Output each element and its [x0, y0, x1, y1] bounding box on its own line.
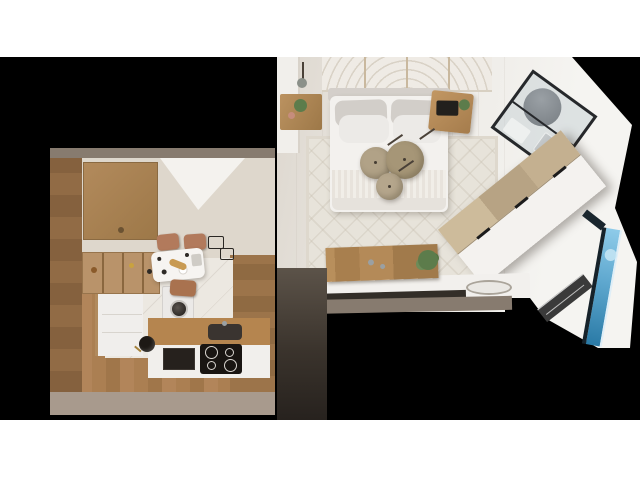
shelf-item — [147, 269, 152, 274]
dining-chair — [156, 233, 180, 251]
kitchen-sink — [208, 324, 242, 340]
chair-metal-frame — [220, 248, 234, 260]
green-plant — [418, 250, 438, 270]
bottom-white-band — [0, 420, 640, 480]
floorplan-render — [0, 0, 640, 480]
burner — [205, 346, 218, 359]
dining-table — [151, 247, 206, 282]
tablet-tray — [436, 100, 458, 115]
dining-chair — [169, 279, 196, 297]
bowl — [161, 269, 166, 274]
shelf-item — [129, 263, 134, 268]
wall-pillar — [277, 268, 327, 420]
kitchen-top-wall — [50, 148, 275, 158]
kitchen-left-wall — [50, 158, 82, 415]
black-oven — [163, 348, 195, 370]
oval-basin — [466, 280, 512, 295]
washer-door — [170, 300, 188, 318]
shelf-item — [91, 267, 97, 273]
induction-cooktop — [200, 344, 242, 374]
tray — [191, 254, 202, 267]
black-stool — [139, 336, 155, 352]
left-wall-shelf — [280, 94, 322, 130]
panel-divider — [448, 57, 450, 90]
burner — [207, 361, 216, 370]
cabinet-knob — [118, 227, 124, 233]
kitchen-outer-wall — [50, 392, 275, 415]
burner — [224, 359, 237, 372]
decorative-headboard-panel — [322, 57, 492, 92]
pendant-lamp-shade — [376, 173, 403, 200]
kitchen-block — [50, 148, 275, 415]
faucet — [380, 264, 385, 269]
shelf-divider — [122, 253, 124, 293]
panel-divider — [364, 57, 366, 90]
plant — [294, 99, 307, 112]
panel-divider — [406, 57, 408, 90]
upper-wood-cabinet — [83, 162, 158, 240]
shelf-divider — [142, 253, 144, 293]
faucet — [368, 259, 374, 265]
burner — [225, 348, 234, 357]
pillow-white — [339, 115, 389, 143]
bowl — [185, 253, 189, 257]
open-shelf-row — [82, 252, 160, 294]
bowl — [157, 257, 161, 261]
flower — [288, 112, 295, 119]
pendant-lamp-left — [297, 78, 307, 88]
right-nightstand — [428, 90, 474, 134]
window-reflection — [604, 248, 618, 262]
plant — [458, 99, 470, 111]
shelf-divider — [102, 253, 104, 293]
top-white-band — [0, 0, 640, 57]
